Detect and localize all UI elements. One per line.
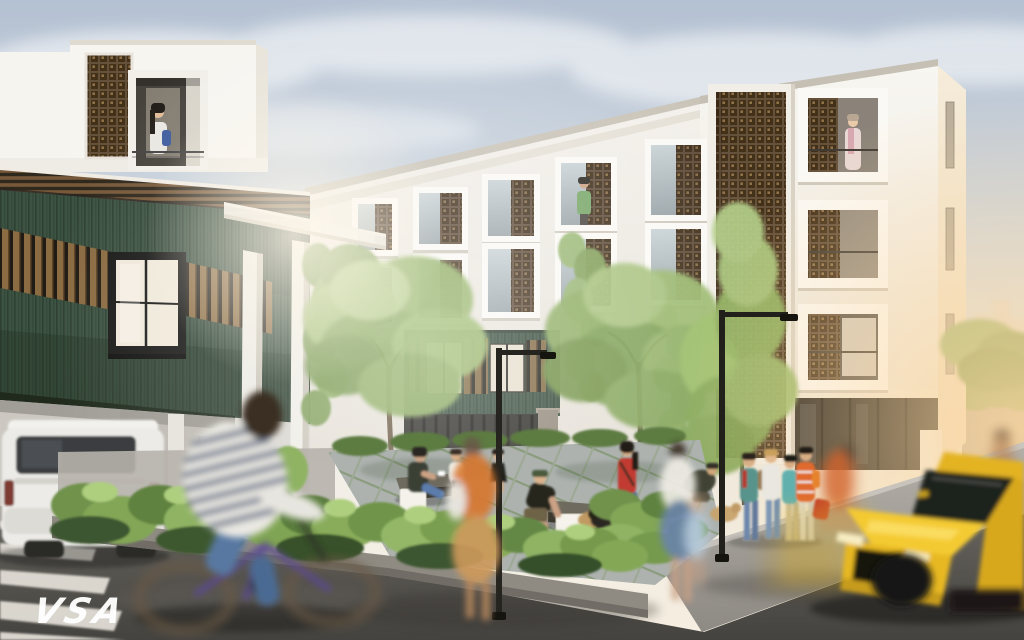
architectural-rendering: VSA xyxy=(0,0,1024,640)
studio-watermark: VSA xyxy=(29,591,130,631)
